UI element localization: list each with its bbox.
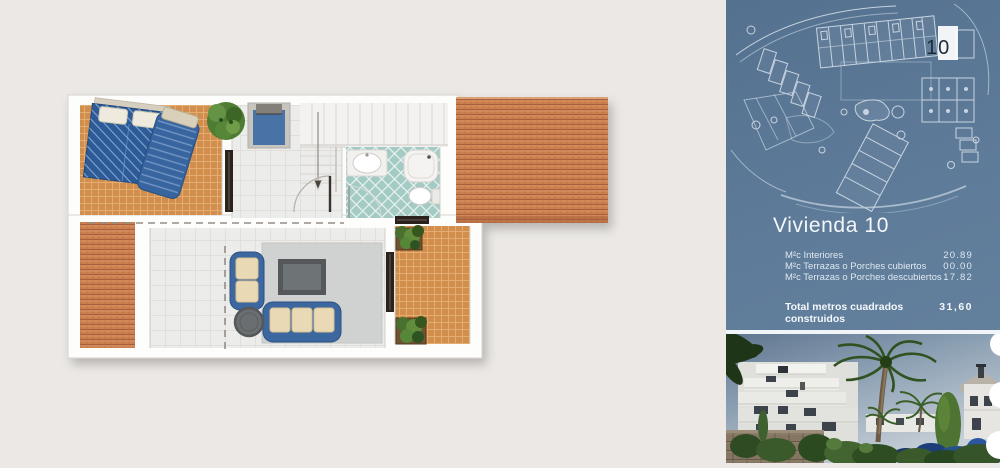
unit-info: Vivienda 10 M²c Interiores 20.89 M²c Ter… [726,213,1000,330]
tv-table [278,259,326,295]
area-label: M²c Terrazas o Porches descubiertos [785,272,942,283]
brochure-page: 10 Vivienda 10 M²c Interiores 20.89 M²c … [0,0,1000,463]
sofa-three-seat [263,302,341,342]
area-row: M²c Terrazas o Porches descubiertos 17.8… [785,272,973,283]
total-row: Total metros cuadrados construidos 31,60 [785,301,973,325]
unit-title: Vivienda 10 [773,214,889,238]
info-panel: 10 Vivienda 10 M²c Interiores 20.89 M²c … [726,0,1000,463]
floor-plan-area [0,0,726,463]
floor-plan [0,0,726,463]
site-map: 10 [726,0,1000,213]
roof-left-strip [80,222,135,348]
storage-box [248,103,290,148]
area-label: M²c Terrazas o Porches cubiertos [785,261,926,272]
planter-top [395,225,424,250]
area-label: M²c Interiores [785,250,843,261]
house-structure [68,95,608,358]
area-row: M²c Interiores 20.89 [785,250,973,261]
section-divider [726,330,1000,334]
area-value: 20.89 [943,250,973,261]
total-label: Total metros cuadrados construidos [785,301,939,325]
area-row: M²c Terrazas o Porches cubiertos 00.00 [785,261,973,272]
stairs-zone [300,103,448,147]
shower [404,150,438,182]
planter-bottom [396,316,427,344]
render-photo [726,334,1000,463]
unit-marker: 10 [926,37,950,59]
pergola [778,366,788,373]
total-value: 31,60 [939,301,973,325]
area-rows: M²c Interiores 20.89 M²c Terrazas o Porc… [785,250,973,283]
sofa-two-seat [230,252,264,310]
roof-right [456,97,608,223]
toilet [409,188,440,205]
round-pouf [235,308,263,336]
area-value: 17.82 [943,272,973,283]
bush [207,102,245,140]
area-value: 00.00 [943,261,973,272]
